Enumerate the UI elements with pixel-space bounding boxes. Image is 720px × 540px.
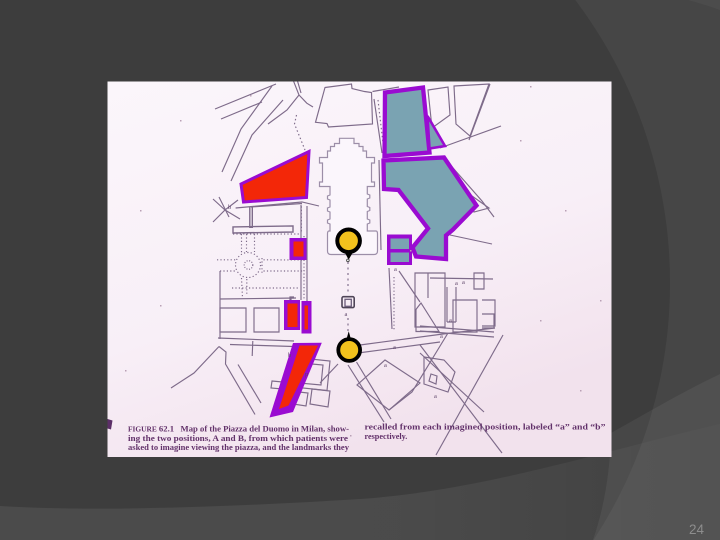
svg-text:a: a <box>455 280 458 287</box>
svg-text:a: a <box>384 362 387 369</box>
svg-text:FIGURE 62.1 Map of the Piazz: FIGURE 62.1 Map of the Piazza del Duomo … <box>128 425 349 434</box>
svg-text:recalled from each imagined po: recalled from each imagined position, la… <box>365 423 606 432</box>
svg-text:a: a <box>394 266 397 273</box>
svg-text:respectively.: respectively. <box>365 432 408 441</box>
svg-text:a: a <box>434 393 437 400</box>
svg-text:asked to imagine viewing the p: asked to imagine viewing the piazza, and… <box>128 443 350 452</box>
svg-text:a: a <box>449 317 452 324</box>
svg-text:b: b <box>288 352 291 359</box>
svg-text:p: p <box>305 371 308 378</box>
svg-text:a: a <box>462 279 465 286</box>
svg-text:24: 24 <box>689 522 705 537</box>
svg-text:a: a <box>345 311 348 318</box>
svg-text:a: a <box>393 344 396 351</box>
svg-text:b: b <box>228 204 231 211</box>
svg-text:ing the two positions, A and B: ing the two positions, A and B, from whi… <box>128 434 348 443</box>
svg-text:a: a <box>440 333 443 340</box>
